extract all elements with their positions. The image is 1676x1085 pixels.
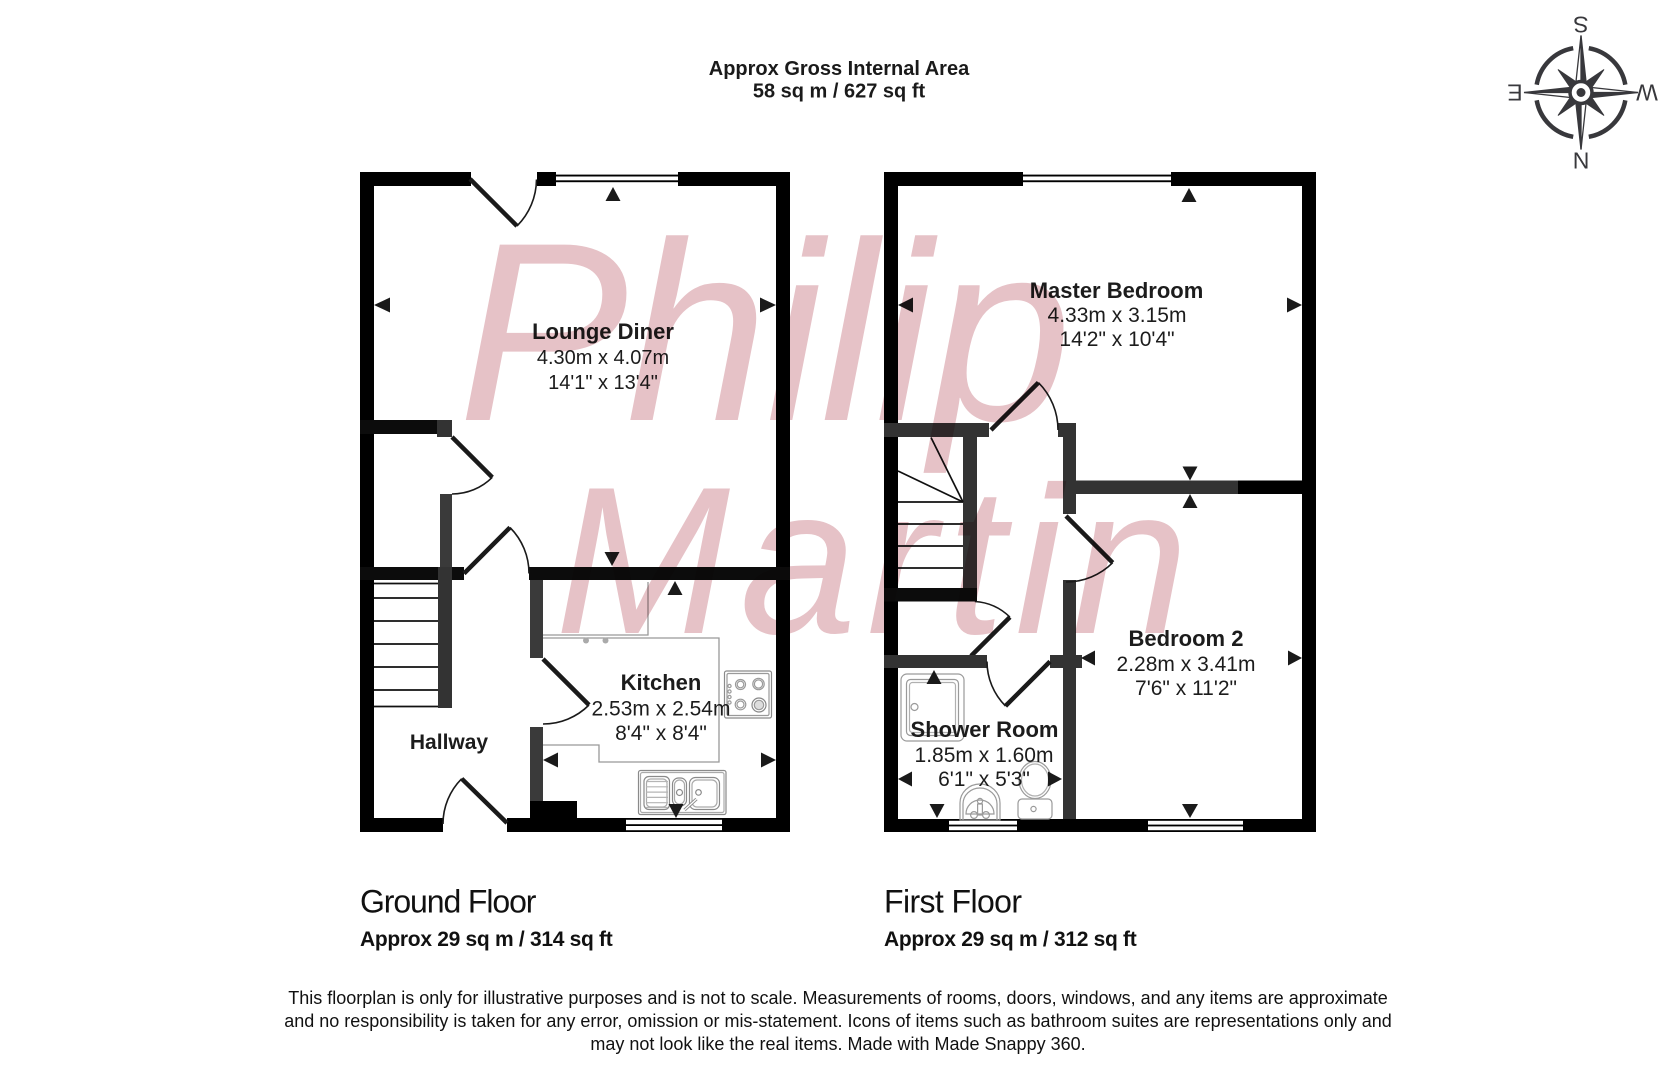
svg-text:Hallway: Hallway (410, 731, 489, 754)
svg-text:First Floor: First Floor (884, 884, 1022, 920)
svg-text:N: N (1573, 148, 1590, 174)
svg-text:8'4" x 8'4": 8'4" x 8'4" (615, 722, 707, 745)
svg-text:may not look like the real ite: may not look like the real items. Made w… (590, 1034, 1085, 1054)
svg-text:Philip: Philip (458, 190, 1070, 475)
svg-text:2.53m x 2.54m: 2.53m x 2.54m (592, 698, 731, 721)
svg-text:S: S (1573, 12, 1588, 38)
svg-text:Shower Room: Shower Room (911, 717, 1059, 742)
svg-text:Ground Floor: Ground Floor (360, 884, 537, 920)
svg-text:Approx Gross Internal Area: Approx Gross Internal Area (709, 58, 970, 80)
svg-text:6'1" x 5'3": 6'1" x 5'3" (938, 768, 1030, 791)
svg-text:Martin: Martin (555, 443, 1198, 678)
svg-text:1.85m x 1.60m: 1.85m x 1.60m (915, 744, 1054, 767)
svg-text:Approx 29 sq m / 314 sq ft: Approx 29 sq m / 314 sq ft (360, 928, 613, 951)
svg-text:W: W (1636, 80, 1658, 106)
svg-text:7'6" x 11'2": 7'6" x 11'2" (1135, 677, 1237, 700)
svg-text:E: E (1507, 80, 1522, 106)
svg-text:58 sq m / 627 sq ft: 58 sq m / 627 sq ft (753, 81, 926, 103)
svg-text:This floorplan is only for ill: This floorplan is only for illustrative … (288, 988, 1388, 1008)
svg-text:Approx 29 sq m / 312 sq ft: Approx 29 sq m / 312 sq ft (884, 928, 1137, 951)
svg-text:and no responsibility is taken: and no responsibility is taken for any e… (284, 1011, 1392, 1031)
svg-text:14'2" x 10'4": 14'2" x 10'4" (1059, 328, 1174, 351)
